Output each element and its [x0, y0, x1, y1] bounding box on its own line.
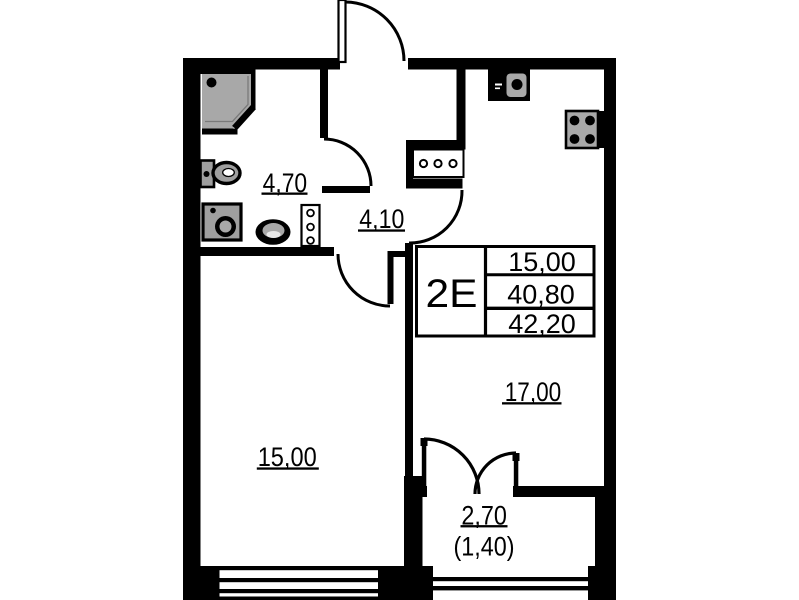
svg-text:2E: 2E	[426, 272, 478, 316]
svg-text:(1,40): (1,40)	[454, 532, 515, 562]
svg-text:40,80: 40,80	[507, 280, 575, 310]
svg-text:15,00: 15,00	[508, 247, 576, 277]
svg-text:42,20: 42,20	[508, 309, 576, 339]
